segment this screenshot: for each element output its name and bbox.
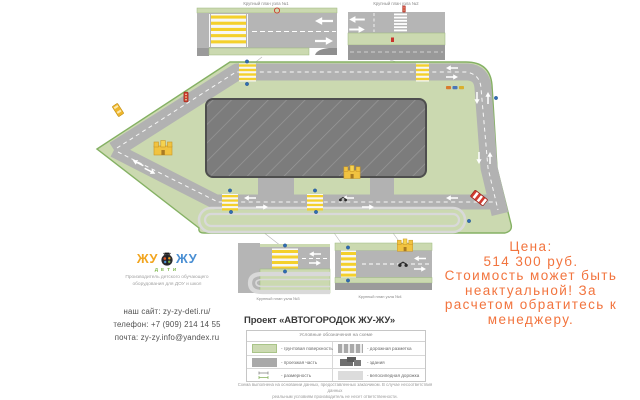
- legend-item-ground: - грунтовая поверхность: [247, 342, 333, 355]
- traffic-light-icon: [391, 38, 394, 43]
- price-notice: Цена: 514 300 руб. Стоимость может быть …: [418, 240, 640, 328]
- traffic-light-icon: [403, 6, 406, 13]
- zebra-crossing-detail1: [211, 14, 246, 47]
- price-note-line4: менеджеру.: [418, 313, 640, 328]
- road-marking-swatch: [338, 344, 363, 353]
- project-title: Проект «АВТОГОРОДОК ЖУ-ЖУ»: [244, 315, 426, 326]
- logo-text-right: ЖУ: [176, 251, 197, 266]
- bus-icon: [112, 103, 124, 117]
- main-plan: [97, 60, 511, 233]
- price-note-line2: неактуальной! За: [418, 284, 640, 299]
- buildings-swatch: [338, 358, 363, 367]
- price-note-line1: Стоимость может быть: [418, 269, 640, 284]
- company-tagline: Производитель детского обучающего оборуд…: [118, 275, 216, 288]
- legend-header: Условные обозначения на схеме: [247, 331, 425, 342]
- zebra-crossing-top-1: [239, 64, 256, 82]
- zebra-crossing-detail3: [272, 249, 298, 269]
- legend-item-dimension: - размерность: [247, 368, 333, 381]
- ladybug-icon: [160, 252, 174, 266]
- castle-icon: [154, 141, 172, 156]
- bike-path-swatch: [338, 371, 363, 380]
- legend-item-road: - проезжая часть: [247, 355, 333, 368]
- dimension-marks-swatch: [252, 371, 277, 380]
- logo: ЖУ ЖУ ДЕТИ Производитель детского обучаю…: [118, 251, 216, 288]
- legend-item-building: - здания: [333, 355, 425, 368]
- castle-icon: [397, 239, 412, 251]
- ground-surface-swatch: [252, 344, 277, 353]
- traffic-light-icon: [184, 92, 188, 102]
- product-sheet: Крупный план узла №1 Крупный план узла №…: [0, 0, 640, 400]
- legend-table: Условные обозначения на схеме - грунтова…: [246, 330, 426, 382]
- price-label: Цена:: [418, 240, 640, 255]
- tagline-line1: Производитель детского обучающего: [118, 275, 216, 282]
- contact-phone: телефон: +7 (909) 214 14 55: [103, 318, 231, 331]
- detail-plan-1: Крупный план узла №1: [197, 1, 337, 56]
- detail-plan-2: Крупный план узла №2: [348, 1, 445, 60]
- detail-plan-3: Крупный план узла №3: [238, 243, 330, 301]
- zebra-crossing-bottom-1: [222, 194, 238, 211]
- legend-grid: - грунтовая поверхность - дорожная разме…: [247, 342, 425, 381]
- price-note-line3: расчетом обратитесь к: [418, 298, 640, 313]
- roadway-swatch: [252, 358, 277, 367]
- detail4-caption: Крупный план узла №4: [358, 294, 402, 299]
- zebra-crossing-bottom-2: [307, 194, 323, 211]
- detail2-caption: Крупный план узла №2: [373, 1, 419, 6]
- tagline-line2: оборудования для ДОУ и школ: [118, 282, 216, 289]
- legend-item-marking: - дорожная разметка: [333, 342, 425, 355]
- contact-email: почта: zy-zy.info@yandex.ru: [103, 331, 231, 344]
- logo-row: ЖУ ЖУ: [118, 251, 216, 266]
- parked-cars: [446, 86, 464, 89]
- zebra-crossing-top-2: [416, 64, 429, 82]
- detail3-caption: Крупный план узла №3: [256, 296, 300, 301]
- disclaimer: Схема выполнена на основании данных, пре…: [234, 382, 436, 400]
- disclaimer-line1: Схема выполнена на основании данных, пре…: [234, 382, 436, 394]
- contact-site: наш сайт: zy-zy-deti.ru/: [103, 305, 231, 318]
- logo-subtitle: ДЕТИ: [118, 267, 216, 272]
- legend-item-bikepath: - велосипедная дорожка: [333, 368, 425, 381]
- disclaimer-line2: реальным условиям производитель не несет…: [234, 394, 436, 400]
- contacts-block: наш сайт: zy-zy-deti.ru/ телефон: +7 (90…: [103, 305, 231, 345]
- logo-text-left: ЖУ: [137, 251, 158, 266]
- detail1-caption: Крупный план узла №1: [243, 1, 289, 6]
- building: [206, 99, 426, 177]
- price-value: 514 300 руб.: [418, 255, 640, 270]
- castle-icon: [344, 165, 360, 178]
- zebra-crossing-detail4: [341, 251, 356, 278]
